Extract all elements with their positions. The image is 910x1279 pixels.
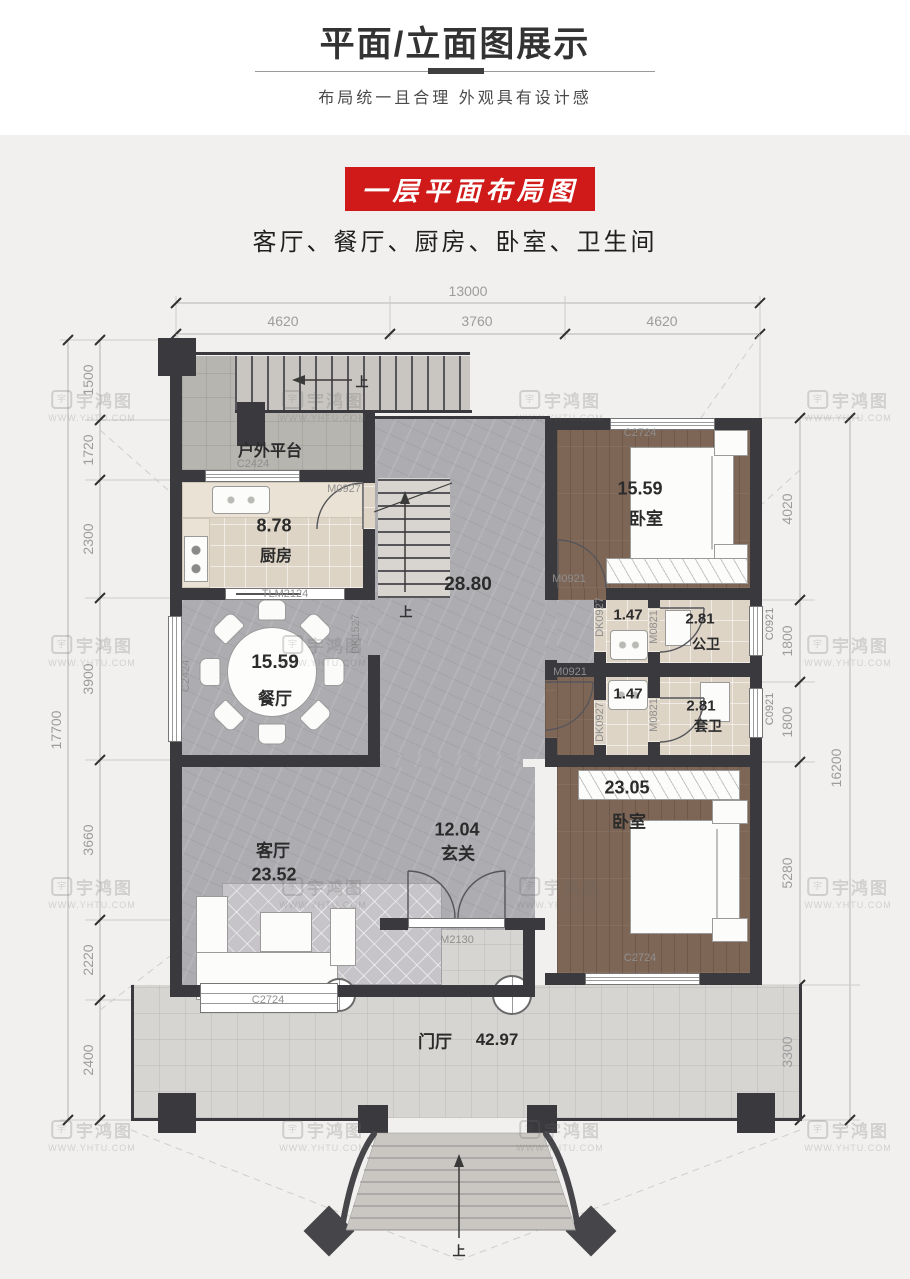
wall (750, 737, 762, 985)
label-bath-public: 公卫 (692, 634, 720, 654)
sofa-bottom (196, 952, 338, 986)
title-divider-accent (428, 68, 484, 74)
label-living: 客厅 (256, 837, 290, 862)
opening-dk1527 (368, 600, 380, 655)
page-title: 平面/立面图展示 (0, 16, 910, 67)
rooms-summary: 客厅、餐厅、厨房、卧室、卫生间 (0, 222, 910, 257)
door-gap (545, 680, 557, 738)
label-kitchen: 厨房 (260, 542, 292, 566)
wall-edge (557, 1118, 802, 1121)
wall (368, 655, 380, 767)
section-badge: 一层平面布局图 (345, 167, 595, 211)
dining-chair (258, 600, 286, 621)
label-up-entry-steps: 上 (452, 1241, 465, 1260)
label-window-c2724-living: C2724 (252, 994, 284, 1006)
wardrobe-bedroom2 (578, 770, 740, 800)
dim-left-seg-6: 2220 (80, 944, 96, 975)
kitchen-sink (212, 486, 270, 514)
washbasin-1 (610, 630, 648, 660)
wall (545, 973, 585, 985)
dim-left-seg-2: 1720 (80, 434, 96, 465)
label-bath-suite-area: 2.81 (686, 698, 715, 715)
dim-top-seg-1: 4620 (267, 313, 298, 329)
wall (158, 1093, 196, 1133)
label-door-m2130: M2130 (440, 934, 474, 946)
window-c0921-a (749, 606, 763, 656)
dim-left-total: 17700 (48, 711, 64, 750)
kitchen-stove (184, 536, 208, 582)
label-kitchen-area: 8.78 (256, 516, 291, 537)
wall (606, 588, 762, 600)
dining-chair (200, 658, 221, 686)
dim-right-seg-1: 4020 (779, 493, 795, 524)
wall-edge (170, 352, 470, 355)
label-door-m0921-bed2: M0921 (553, 666, 587, 678)
floor-plan-page: 平面/立面图展示 布局统一且合理 外观具有设计感 一层平面布局图 客厅、餐厅、厨… (0, 0, 910, 1279)
label-living-area: 23.52 (251, 865, 296, 886)
wall-edge (131, 985, 134, 1121)
floor-corridor (545, 600, 557, 663)
wall (750, 418, 762, 608)
wardrobe-bedroom1 (606, 558, 748, 584)
label-dining: 餐厅 (258, 685, 292, 710)
label-dining-area: 15.59 (251, 652, 299, 674)
dim-left-seg-4: 3900 (80, 663, 96, 694)
label-bath-suite: 套卫 (694, 716, 722, 736)
wall (170, 755, 380, 767)
label-up-indoor-stair: 上 (399, 602, 412, 621)
label-hall-area: 28.80 (444, 574, 492, 596)
label-window-c0921-b: C0921 (764, 693, 776, 725)
wall (545, 755, 762, 767)
label-window-c0921-a: C0921 (764, 608, 776, 640)
label-bedroom1-area: 15.59 (617, 479, 662, 500)
label-window-c2724-bed1: C2724 (624, 427, 656, 439)
label-door-m0821-b: M0821 (648, 698, 660, 732)
label-bath-public-area: 2.81 (685, 611, 714, 628)
dining-chair (258, 724, 286, 745)
dim-right-seg-3: 1800 (779, 706, 795, 737)
label-porch-area: 42.97 (476, 1030, 519, 1050)
label-door-m0927: M0927 (327, 483, 361, 495)
indoor-stair-treads (378, 478, 450, 598)
page-subtitle: 布局统一且合理 外观具有设计感 (0, 84, 910, 108)
label-opening-dk1527: DK1527 (350, 614, 362, 654)
label-door-tlm2124: TLM2124 (262, 588, 308, 600)
wall-edge (131, 1118, 358, 1121)
outdoor-stair-treads (235, 356, 470, 410)
wall (737, 1093, 775, 1133)
label-window-c2424-top: C2424 (237, 458, 269, 470)
label-window-c2424-left: C2424 (180, 660, 192, 692)
wall (170, 470, 205, 482)
label-bedroom2: 卧室 (612, 808, 646, 833)
wall (545, 588, 558, 600)
wall (338, 985, 535, 997)
window-c2424-top (205, 470, 300, 482)
dim-top-seg-2: 3760 (461, 313, 492, 329)
dining-chair (324, 658, 345, 686)
label-bedroom1: 卧室 (629, 505, 663, 530)
coffee-table (260, 912, 312, 952)
wall (557, 663, 762, 677)
nightstand (712, 918, 748, 942)
wall-edge (235, 410, 472, 413)
label-door-m0821-a: M0821 (648, 610, 660, 644)
wall (505, 918, 545, 930)
floor-corridor2 (557, 677, 594, 767)
label-up-outdoor-stair: 上 (355, 372, 368, 391)
floor-corridor (557, 600, 594, 663)
dim-right-seg-2: 1800 (779, 625, 795, 656)
nightstand (712, 800, 748, 824)
wall (345, 588, 375, 600)
wall (548, 418, 610, 430)
wall-edge (375, 416, 550, 419)
label-opening-dk0927-a: DK0927 (594, 597, 606, 637)
bed-bedroom1 (630, 447, 734, 559)
wall (170, 588, 225, 600)
wall (523, 930, 535, 985)
bed-bedroom2 (630, 820, 740, 934)
label-bedroom2-area: 23.05 (604, 778, 649, 799)
wall (380, 918, 408, 930)
label-opening-dk0927-b: DK0927 (594, 702, 606, 742)
label-window-c2724-bed2: C2724 (624, 952, 656, 964)
wall (363, 410, 375, 483)
dim-left-seg-5: 3660 (80, 824, 96, 855)
dim-left-seg-3: 2300 (80, 523, 96, 554)
label-porch: 门厅 (418, 1028, 452, 1053)
wall-edge (799, 985, 802, 1121)
door-gap (363, 483, 375, 529)
section-badge-label: 一层平面布局图 (361, 171, 578, 208)
label-foyer: 玄关 (441, 840, 475, 865)
wall (170, 352, 182, 616)
dim-top-total: 13000 (449, 283, 488, 299)
wall (170, 742, 182, 985)
wall (358, 1105, 388, 1133)
dim-right-total: 16200 (828, 749, 844, 788)
dim-right-seg-5: 3300 (779, 1036, 795, 1067)
window-c2724-bed2 (585, 973, 700, 985)
label-foyer-area: 12.04 (434, 820, 479, 841)
wall (700, 973, 762, 985)
dim-left-seg-7: 2400 (80, 1044, 96, 1075)
window-c0921-b (749, 688, 763, 738)
nightstand (714, 430, 748, 456)
wall (648, 600, 660, 608)
dim-top-seg-3: 4620 (646, 313, 677, 329)
door-sill-m2130 (408, 918, 505, 928)
side-table (330, 908, 356, 966)
label-door-m0921-bed1: M0921 (552, 573, 586, 585)
wall (527, 1105, 557, 1133)
label-vestibule1-area: 1.47 (613, 607, 642, 624)
dim-left-seg-1: 1500 (80, 364, 96, 395)
label-vestibule2-area: 1.47 (613, 686, 642, 703)
dim-right-seg-4: 5280 (779, 857, 795, 888)
